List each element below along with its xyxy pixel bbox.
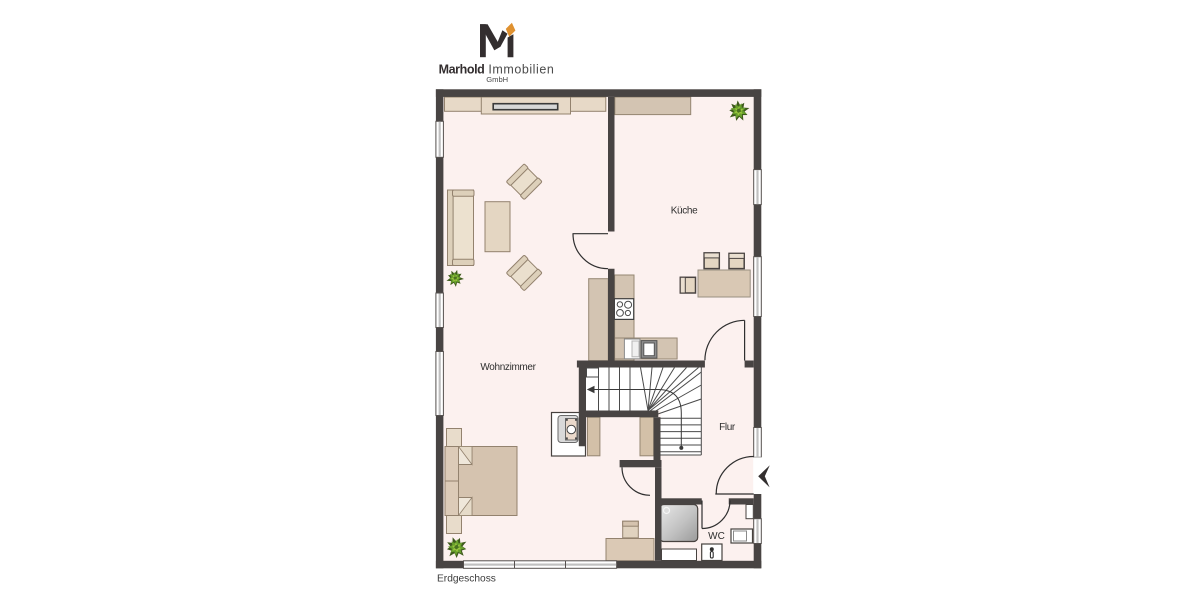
svg-text:GmbH: GmbH	[486, 75, 508, 84]
svg-text:Küche: Küche	[671, 206, 698, 217]
svg-text:Wohnzimmer: Wohnzimmer	[480, 362, 536, 373]
svg-text:Flur: Flur	[719, 422, 736, 433]
svg-text:Marhold: Marhold	[439, 63, 485, 77]
svg-text:WC: WC	[708, 531, 725, 542]
svg-text:Erdgeschoss: Erdgeschoss	[437, 573, 496, 584]
